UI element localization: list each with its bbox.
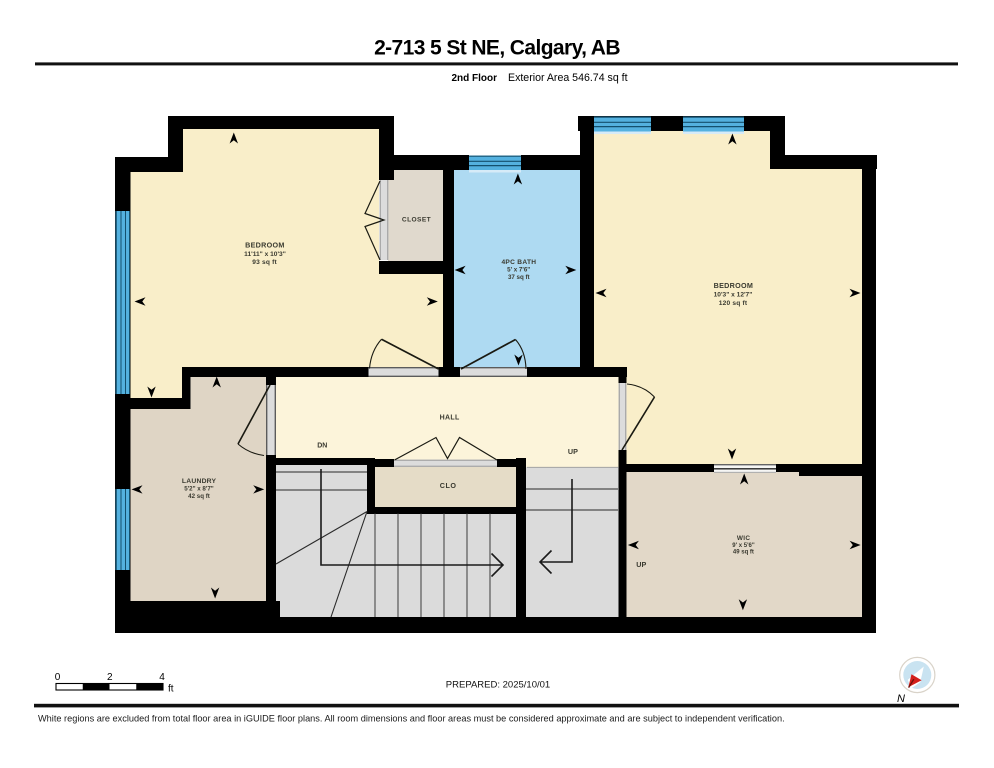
svg-text:Exterior Area 546.74 sq ft: Exterior Area 546.74 sq ft bbox=[508, 72, 628, 84]
svg-text:CLOSET: CLOSET bbox=[402, 217, 431, 224]
svg-text:ft: ft bbox=[168, 684, 174, 695]
svg-text:N: N bbox=[897, 693, 905, 705]
svg-text:LAUNDRY: LAUNDRY bbox=[182, 478, 217, 485]
svg-text:BEDROOM: BEDROOM bbox=[245, 241, 285, 250]
svg-text:White regions are excluded fro: White regions are excluded from total fl… bbox=[38, 714, 785, 724]
svg-text:UP: UP bbox=[568, 447, 578, 456]
svg-text:2: 2 bbox=[107, 672, 113, 683]
svg-text:4PC BATH: 4PC BATH bbox=[501, 259, 536, 266]
svg-text:9' x 5'6": 9' x 5'6" bbox=[732, 543, 755, 549]
svg-text:5'2" x 8'7": 5'2" x 8'7" bbox=[184, 486, 214, 493]
svg-text:BEDROOM: BEDROOM bbox=[714, 281, 754, 290]
svg-text:120 sq ft: 120 sq ft bbox=[719, 300, 748, 307]
svg-text:0: 0 bbox=[55, 672, 61, 683]
svg-text:UP: UP bbox=[636, 560, 646, 569]
svg-text:49 sq ft: 49 sq ft bbox=[733, 549, 754, 555]
svg-text:DN: DN bbox=[317, 442, 327, 449]
svg-text:WIC: WIC bbox=[737, 535, 750, 542]
svg-text:37 sq ft: 37 sq ft bbox=[508, 274, 530, 281]
svg-text:42 sq ft: 42 sq ft bbox=[188, 493, 210, 500]
svg-text:2-713 5 St NE, Calgary, AB: 2-713 5 St NE, Calgary, AB bbox=[374, 37, 620, 60]
svg-text:PREPARED: 2025/10/01: PREPARED: 2025/10/01 bbox=[446, 680, 550, 691]
svg-text:2nd Floor: 2nd Floor bbox=[451, 73, 497, 84]
svg-text:11'11" x 10'3": 11'11" x 10'3" bbox=[244, 251, 286, 258]
svg-text:93 sq ft: 93 sq ft bbox=[252, 259, 277, 266]
svg-text:4: 4 bbox=[159, 672, 165, 683]
svg-text:10'3" x 12'7": 10'3" x 12'7" bbox=[714, 292, 753, 299]
svg-text:5' x 7'6": 5' x 7'6" bbox=[507, 266, 530, 273]
svg-text:HALL: HALL bbox=[440, 415, 460, 422]
svg-text:CLO: CLO bbox=[440, 481, 457, 490]
